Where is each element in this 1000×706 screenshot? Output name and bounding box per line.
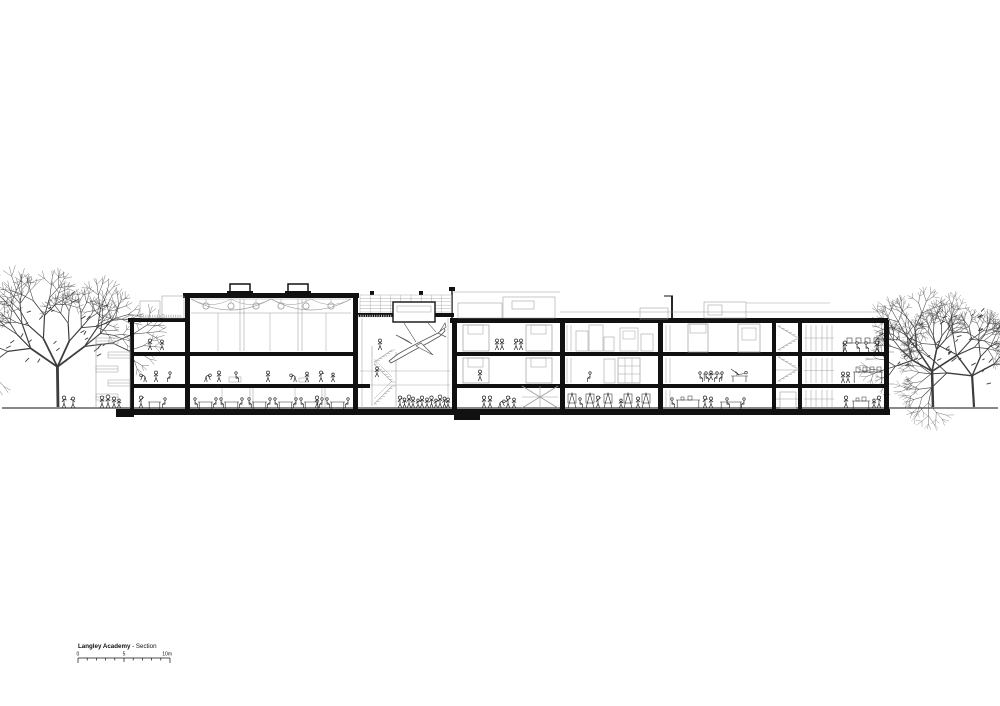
drawing-type-label: - Section xyxy=(130,643,157,650)
scale-label-end: 10m xyxy=(162,652,172,658)
title-block: Langley Academy - Section xyxy=(78,643,157,650)
drawing-title: Langley Academy - Section xyxy=(78,643,157,650)
scale-label-mid: 5 xyxy=(123,652,126,658)
section-drawing: Langley Academy - Section 0 5 10m xyxy=(0,0,1000,706)
scale-bar: 0 5 10m xyxy=(77,652,173,664)
project-name: Langley Academy xyxy=(78,643,131,650)
people-figures xyxy=(62,339,881,409)
scale-label-zero: 0 xyxy=(77,652,80,658)
drawing-sheet: Langley Academy - Section 0 5 10m xyxy=(0,0,1000,706)
